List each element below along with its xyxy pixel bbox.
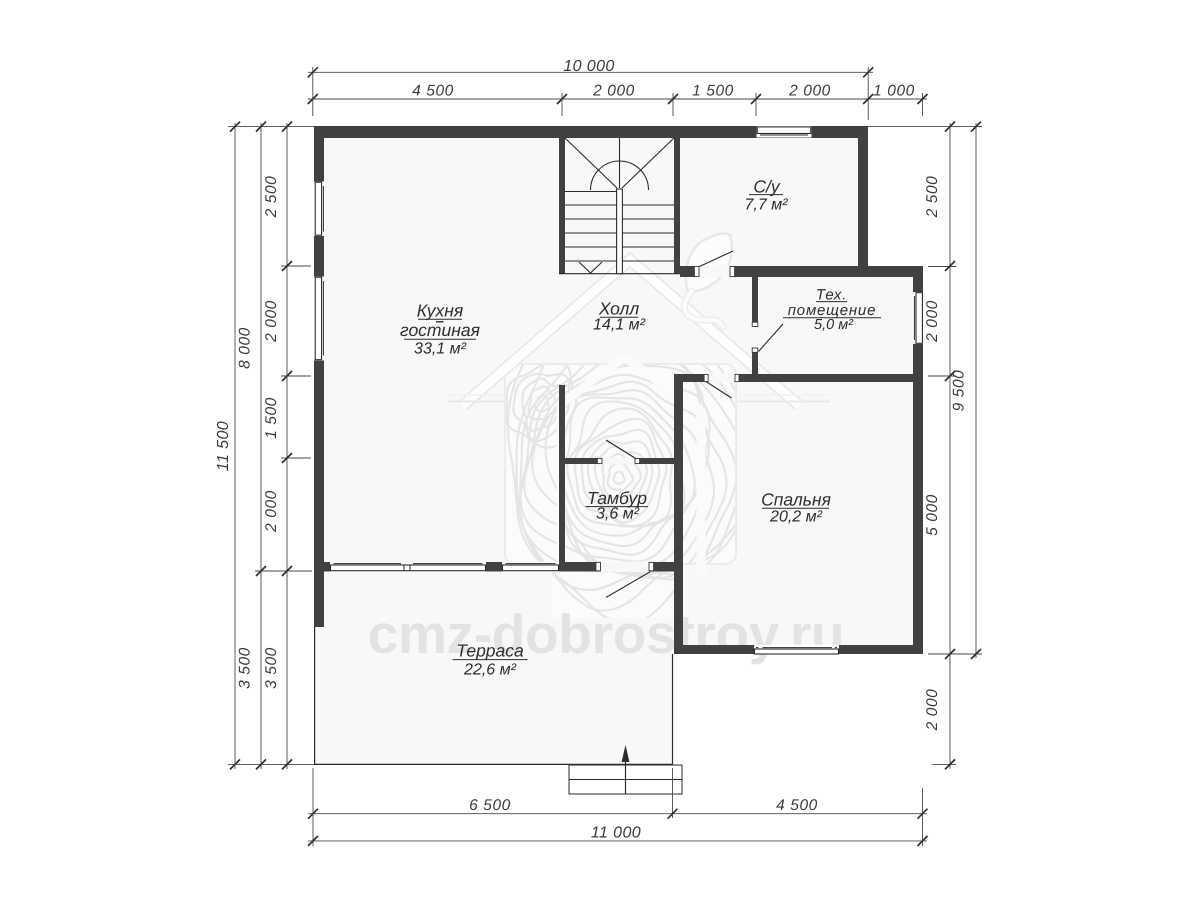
svg-text:1 000: 1 000 (873, 83, 915, 100)
svg-text:Кухня: Кухня (417, 300, 464, 320)
svg-text:5 000: 5 000 (924, 494, 941, 536)
svg-text:3,6 м²: 3,6 м² (596, 506, 640, 523)
svg-text:1 500: 1 500 (692, 83, 734, 100)
svg-text:2 000: 2 000 (263, 490, 280, 533)
svg-text:2 000: 2 000 (592, 83, 635, 100)
svg-text:8 000: 8 000 (237, 327, 254, 369)
svg-text:cmz-dobrostroy.ru: cmz-dobrostroy.ru (368, 603, 845, 665)
svg-text:2 000: 2 000 (263, 300, 280, 343)
svg-text:22,6 м²: 22,6 м² (463, 662, 517, 679)
svg-text:Холл: Холл (598, 299, 640, 319)
svg-text:14,1 м²: 14,1 м² (593, 317, 646, 334)
svg-text:10 000: 10 000 (563, 58, 614, 75)
svg-text:2 000: 2 000 (788, 83, 831, 100)
svg-text:33,1 м²: 33,1 м² (414, 341, 467, 358)
svg-text:6 500: 6 500 (469, 797, 511, 814)
svg-text:4 500: 4 500 (776, 797, 818, 814)
svg-text:2 000: 2 000 (924, 689, 941, 732)
svg-text:Терраса: Терраса (456, 641, 524, 661)
svg-text:20,2 м²: 20,2 м² (769, 509, 823, 526)
svg-text:11 000: 11 000 (591, 824, 641, 841)
svg-text:9 500: 9 500 (951, 370, 968, 412)
svg-text:2 500: 2 500 (263, 176, 280, 219)
svg-text:3 500: 3 500 (263, 647, 280, 689)
svg-text:7,7 м²: 7,7 м² (745, 197, 789, 214)
svg-text:5,0 м²: 5,0 м² (814, 317, 854, 333)
svg-text:2 500: 2 500 (924, 176, 941, 219)
svg-text:1 500: 1 500 (263, 397, 280, 439)
svg-text:Спальня: Спальня (761, 490, 831, 510)
svg-text:4 500: 4 500 (412, 83, 454, 100)
svg-text:2 000: 2 000 (924, 300, 941, 343)
svg-text:гостиная: гостиная (400, 320, 480, 340)
svg-text:3 500: 3 500 (237, 647, 254, 689)
svg-text:С/у: С/у (753, 177, 781, 197)
svg-text:Тех.: Тех. (816, 287, 847, 304)
svg-text:11 500: 11 500 (215, 421, 232, 471)
